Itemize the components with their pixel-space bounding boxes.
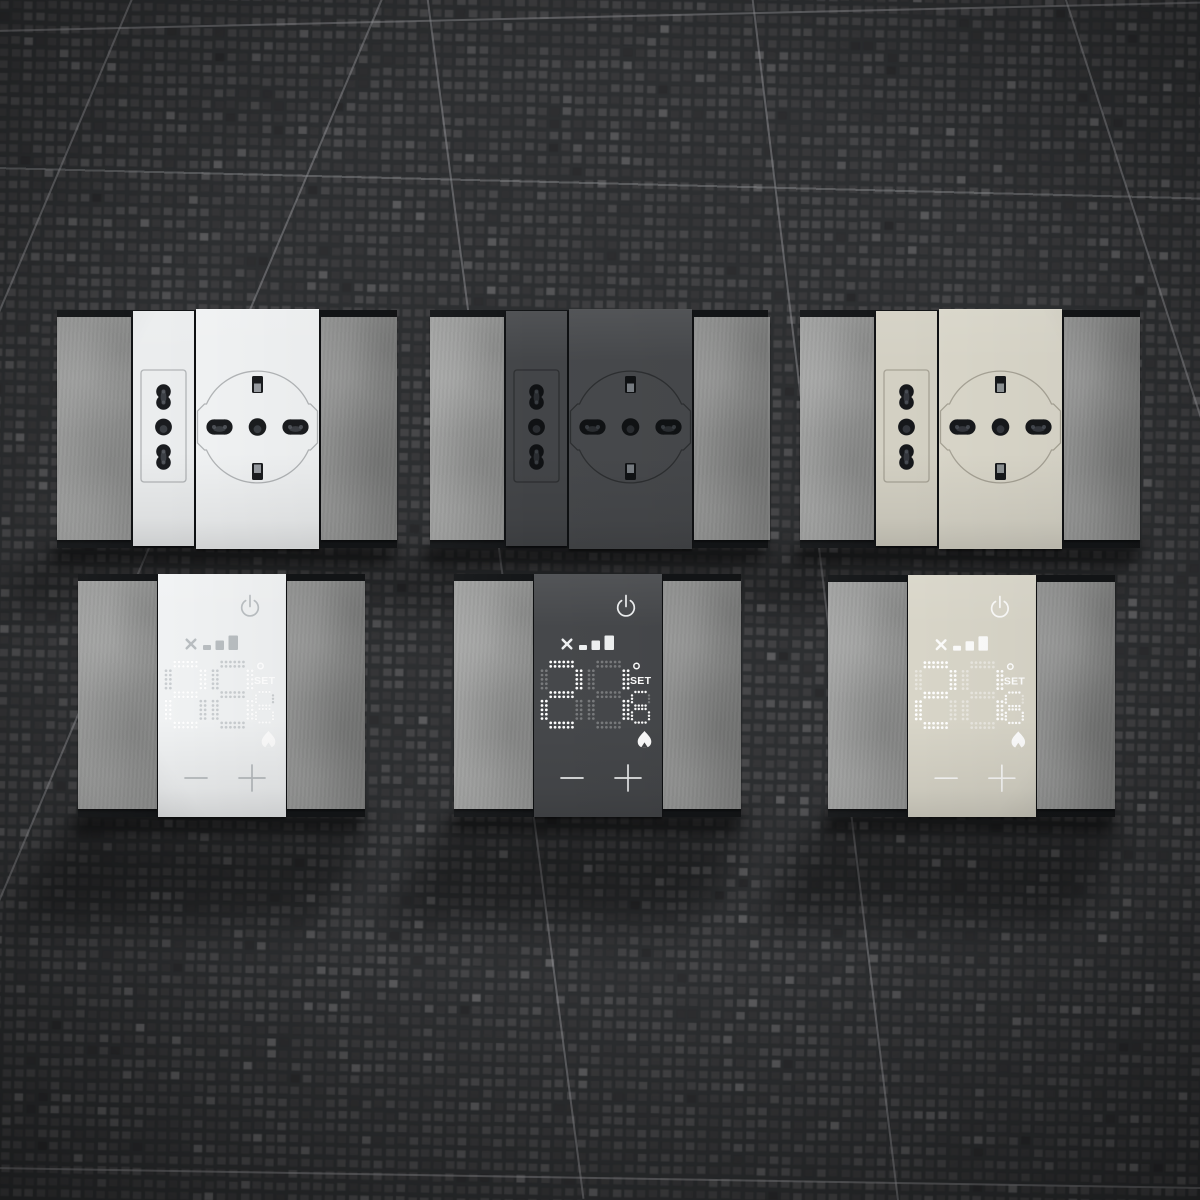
degree-symbol xyxy=(634,663,639,668)
flame-icon xyxy=(1012,731,1026,748)
socket-hole-top xyxy=(156,384,171,410)
plus-button[interactable] xyxy=(989,765,1015,791)
fan-icon xyxy=(187,640,196,649)
flame-icon xyxy=(262,731,276,748)
schuko-bipasso-socket xyxy=(196,309,319,549)
fan-speed-bars-icon xyxy=(953,636,988,650)
power-icon[interactable] xyxy=(618,596,635,616)
product-render-scene: SET xyxy=(0,0,1200,1200)
concrete-panel-left xyxy=(828,582,907,809)
socket-hole-right xyxy=(655,419,681,434)
degree-symbol xyxy=(258,663,263,668)
schuko-bipasso-socket xyxy=(569,309,692,549)
earth-clip-top xyxy=(625,376,636,393)
italian-socket xyxy=(876,311,937,546)
flame-icon xyxy=(638,731,652,748)
italian-socket-module xyxy=(506,311,567,546)
concrete-panel-right xyxy=(1064,317,1140,540)
socket-hole-left xyxy=(206,419,232,434)
socket-hole-top xyxy=(899,384,914,410)
power-icon[interactable] xyxy=(992,596,1009,616)
socket-hole-left xyxy=(949,419,975,434)
cast-shadow xyxy=(390,821,752,921)
thermostat-white: SET xyxy=(78,574,365,817)
socket-hole-center xyxy=(992,418,1010,436)
italian-socket xyxy=(133,311,194,546)
concrete-panel-left xyxy=(430,317,504,540)
thermostat-front-module: SET xyxy=(908,575,1036,817)
italian-socket-module xyxy=(876,311,937,546)
fan-speed-bars-icon xyxy=(579,636,614,651)
thermostat-anthracite: SET xyxy=(454,574,741,817)
schuko-bipasso-socket xyxy=(939,309,1062,549)
socket-hole-center xyxy=(622,418,640,436)
temperature-dot-matrix xyxy=(165,661,275,729)
socket-hole-bottom xyxy=(529,444,544,470)
socket-hole-middle xyxy=(155,419,172,436)
concrete-panel-right xyxy=(663,581,741,809)
plus-button[interactable] xyxy=(239,765,265,791)
concrete-panel-right xyxy=(287,581,365,809)
socket-hole-center xyxy=(249,418,267,436)
fan-speed-bars-icon xyxy=(203,636,238,651)
set-label: SET xyxy=(254,675,276,687)
earth-clip-top xyxy=(252,376,263,393)
earth-clip-bottom xyxy=(625,463,636,480)
cast-shadow xyxy=(764,821,1126,921)
concrete-panel-right xyxy=(694,317,770,540)
fan-icon xyxy=(563,640,572,649)
concrete-panel-left xyxy=(454,581,533,809)
socket-plate-sand xyxy=(800,310,1140,548)
earth-clip-bottom xyxy=(995,463,1006,480)
thermostat-display: SET xyxy=(908,575,1036,817)
earth-clip-top xyxy=(995,376,1006,393)
socket-plate-white xyxy=(57,310,397,548)
schuko-socket-module xyxy=(939,309,1062,549)
temperature-dot-matrix xyxy=(915,661,1024,729)
concrete-panel-left xyxy=(800,317,874,540)
degree-symbol xyxy=(1008,664,1013,669)
thermostat-front-module: SET xyxy=(158,574,286,817)
socket-hole-bottom xyxy=(899,444,914,470)
italian-socket xyxy=(506,311,567,546)
thermostat-sand: SET xyxy=(828,575,1115,817)
socket-hole-right xyxy=(1025,419,1051,434)
italian-socket-module xyxy=(133,311,194,546)
temperature-dot-matrix xyxy=(541,661,651,729)
earth-clip-bottom xyxy=(252,463,263,480)
schuko-socket-module xyxy=(569,309,692,549)
fan-icon xyxy=(937,640,946,649)
cast-shadow xyxy=(14,821,376,921)
concrete-panel-left xyxy=(57,317,131,540)
concrete-panel-right xyxy=(1037,582,1115,809)
set-label: SET xyxy=(630,675,652,687)
thermostat-front-module: SET xyxy=(534,574,662,817)
socket-plate-anthracite xyxy=(430,310,768,548)
socket-hole-top xyxy=(529,384,544,410)
socket-hole-middle xyxy=(528,419,545,436)
plus-button[interactable] xyxy=(615,765,641,791)
set-label: SET xyxy=(1004,677,1026,688)
socket-hole-bottom xyxy=(156,444,171,470)
thermostat-display: SET xyxy=(534,574,662,817)
socket-hole-middle xyxy=(898,419,915,436)
power-icon[interactable] xyxy=(242,596,259,616)
socket-hole-left xyxy=(579,419,605,434)
concrete-panel-left xyxy=(78,581,157,809)
schuko-socket-module xyxy=(196,309,319,549)
concrete-panel-right xyxy=(321,317,397,540)
thermostat-display: SET xyxy=(158,574,286,817)
socket-hole-right xyxy=(282,419,308,434)
